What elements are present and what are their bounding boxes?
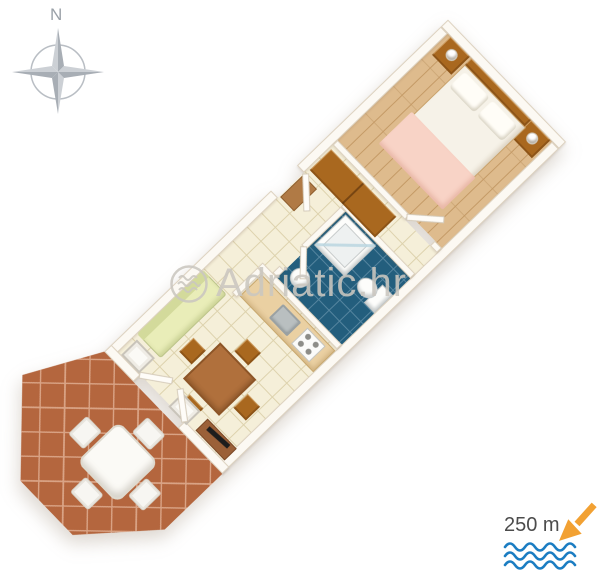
compass-north-label: N	[50, 5, 62, 24]
compass-rose: N	[6, 2, 110, 122]
distance-to-sea-indicator: 250 m	[496, 498, 596, 572]
sea-waves-icon	[502, 540, 586, 572]
arrow-down-left-icon	[556, 502, 598, 544]
bathroom-door-leaf	[301, 247, 307, 278]
distance-label: 250 m	[504, 514, 560, 537]
